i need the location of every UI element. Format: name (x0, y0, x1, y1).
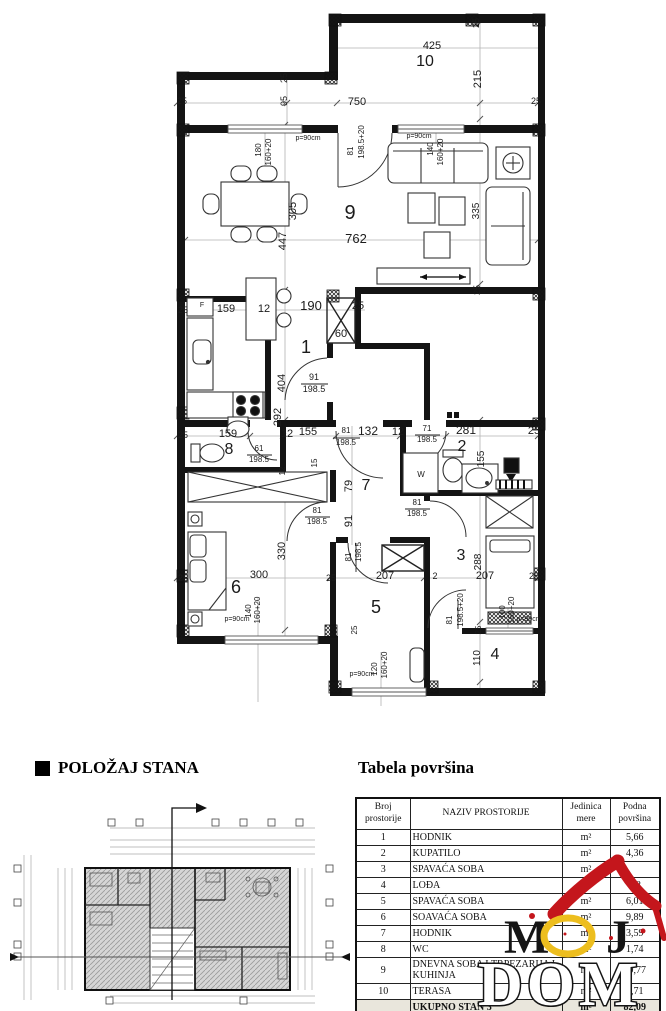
room-number-label: 10 (416, 53, 434, 70)
dim-label: 100 (498, 605, 507, 619)
dim-label: 198.5+20 (456, 593, 465, 627)
dim-label: 300 (250, 569, 268, 581)
room-number-label: 6 (231, 577, 241, 597)
dim-label: 160+20 (264, 138, 273, 165)
room-number-label: 2 (458, 438, 467, 455)
dim-label: 12 (281, 428, 293, 440)
dim-label: 281 (456, 423, 476, 437)
dim-label: 25 (178, 305, 188, 315)
table-total-row: UKUPNO STAN 3m²82,09 (356, 999, 660, 1011)
dim-label: 198.5 (336, 438, 357, 447)
table-col-header: Podna površina (610, 798, 660, 829)
window (225, 636, 318, 644)
cell-unit: m² (562, 983, 610, 999)
dim-label: 25 (471, 18, 481, 28)
radiator (496, 480, 532, 489)
dim-label: 160+20 (507, 596, 516, 623)
dim-label: 81 (445, 615, 454, 624)
pillow (190, 535, 206, 557)
dim-label: 25 (326, 573, 336, 583)
table-row: 1HODNIKm²5,66 (356, 829, 660, 845)
toilet (443, 458, 463, 482)
cell-area: 29,77 (610, 957, 660, 983)
furniture (187, 143, 534, 682)
table-row: 10TERASAm²2,71 (356, 983, 660, 999)
window (352, 688, 426, 696)
cell-area: 2,2 (610, 877, 660, 893)
coffee-table (408, 193, 435, 223)
dim-label: 91 (309, 372, 319, 382)
dim-label: 79 (343, 480, 355, 492)
cell-no: 6 (356, 909, 410, 925)
chair (203, 194, 219, 214)
cell-no: 7 (356, 925, 410, 941)
dim-label: 60 (335, 328, 347, 340)
dim-label: 207 (376, 570, 394, 582)
cell-unit: m² (562, 999, 610, 1011)
dim-label: 404 (276, 374, 288, 392)
table-row: 2KUPATILOm²4,36 (356, 845, 660, 861)
chair (231, 166, 251, 181)
dim-label: 81 (413, 498, 422, 507)
table-row: 3SPAVAĆA SOBAm² (356, 861, 660, 877)
room-number-label: 9 (344, 202, 355, 224)
cell-area: 2,71 (610, 983, 660, 999)
toilet-tank (191, 444, 200, 462)
room-number-label: 3 (457, 547, 466, 564)
dim-label: 25 (472, 285, 482, 295)
dim-label: p=90cm (295, 135, 320, 142)
cell-area: 4,36 (610, 845, 660, 861)
dim-label: 330 (276, 542, 288, 560)
dim-label: 91 (343, 515, 355, 527)
page: 425102152525257509525p=90cm180160+208119… (0, 0, 666, 1011)
areas-table: Broj prostorijeNAZIV PROSTORIJEJedinica … (355, 797, 661, 1011)
window (486, 628, 533, 634)
floor-plan-drawing: 425102152525257509525p=90cm180160+208119… (0, 0, 666, 750)
cell-name: WC (410, 941, 562, 957)
boiler (504, 458, 519, 473)
dim-label: 2 (432, 571, 437, 581)
toilet (200, 444, 224, 462)
dim-label: 160+20 (253, 596, 262, 623)
stool (277, 313, 291, 327)
cell-no: 10 (356, 983, 410, 999)
cell-area (610, 861, 660, 877)
dim-label: 425 (423, 40, 441, 52)
dining-table (221, 182, 289, 226)
chair (257, 227, 277, 242)
dim-label: 25 (352, 300, 364, 312)
dim-label: 140 (426, 142, 435, 156)
table-col-header: NAZIV PROSTORIJE (410, 798, 562, 829)
dim-label: 12 (258, 303, 270, 315)
cell-area: 3,59 (610, 925, 660, 941)
table-row: 9DNEVNA SOBA I TRPEZARIJA I KUHINJAm²29,… (356, 957, 660, 983)
cell-no: 5 (356, 893, 410, 909)
dim-label: 305 (287, 202, 299, 220)
cell-no: 3 (356, 861, 410, 877)
dim-label: 15 (310, 458, 319, 467)
cell-name: HODNIK (410, 925, 562, 941)
chair (231, 227, 251, 242)
dim-label: 198.5 (307, 517, 328, 526)
window (228, 125, 302, 133)
dim-label: 81 (342, 426, 351, 435)
bath-sink (466, 468, 492, 488)
cell-area: 82,09 (610, 999, 660, 1011)
dim-label: 25 (178, 430, 188, 440)
dim-label: 61 (255, 444, 264, 453)
dim-label: 159 (217, 303, 235, 315)
dim-label: 288 (473, 553, 484, 570)
dim-label: 132 (358, 424, 378, 438)
dim-label: 25 (279, 73, 289, 83)
section-arrow (196, 803, 207, 813)
cell-unit: m² (562, 893, 610, 909)
dim-label: 155 (299, 426, 317, 438)
room-number-label: 8 (225, 441, 234, 458)
table-head-row: Broj prostorijeNAZIV PROSTORIJEJedinica … (356, 798, 660, 829)
cell-name: SOAVAĆA SOBA (410, 909, 562, 925)
dim-label: 215 (472, 70, 484, 88)
cell-name: LOĐA (410, 877, 562, 893)
dim-label: 180 (254, 143, 263, 157)
dim-label: 447 (277, 232, 289, 250)
dim-label: 198.5 (249, 455, 270, 464)
dim-label: 198.5 (303, 384, 326, 394)
dim-label: 25 (350, 625, 359, 634)
cell-unit: m² (562, 909, 610, 925)
stool (277, 289, 291, 303)
dim-label: 198.5 (407, 509, 428, 518)
cell-no: 1 (356, 829, 410, 845)
polozaj-title: POLOŽAJ STANA (58, 758, 199, 778)
table-header: Tabela površina (358, 758, 474, 778)
cell-unit: m² (562, 861, 610, 877)
dim-label: W (417, 470, 425, 479)
dim-label: 207 (476, 570, 494, 582)
dim-label: 12 (278, 466, 287, 475)
building-position-plan (10, 795, 350, 1010)
room-number-label: 7 (362, 477, 371, 494)
table-row: 4LOĐAm²2,2 (356, 877, 660, 893)
dim-label: 25 (474, 625, 483, 634)
cell-no: 8 (356, 941, 410, 957)
cell-no (356, 999, 410, 1011)
cell-name: HODNIK (410, 829, 562, 845)
dim-label: F (200, 302, 204, 309)
dim-label: 95 (279, 96, 289, 106)
cell-unit: m² (562, 829, 610, 845)
dim-label: 25 (531, 96, 541, 106)
polozaj-header: POLOŽAJ STANA (35, 758, 199, 778)
cell-name: KUPATILO (410, 845, 562, 861)
dim-label: 762 (345, 231, 367, 246)
table-row: 5SPAVAĆA SOBAm²6,01 (356, 893, 660, 909)
dim-label: 110 (472, 650, 483, 666)
room-number-label: 1 (301, 337, 311, 357)
window (398, 125, 464, 133)
dim-label: 81 (346, 146, 355, 155)
cell-area: 9,89 (610, 909, 660, 925)
cell-name: DNEVNA SOBA I TRPEZARIJA I KUHINJA (410, 957, 562, 983)
dim-label: 25 (178, 573, 188, 583)
table-col-header: Jedinica mere (562, 798, 610, 829)
table-title: Tabela površina (358, 758, 474, 778)
dim-label: 160+20 (436, 138, 445, 165)
cell-unit: m² (562, 957, 610, 983)
cell-area: 6,01 (610, 893, 660, 909)
dim-label: 155 (476, 450, 487, 467)
coffee-table (439, 197, 465, 225)
dim-label: 81 (313, 506, 322, 515)
dim-label: 25 (528, 425, 540, 437)
table-col-header: Broj prostorije (356, 798, 410, 829)
dim-label: 25 (177, 96, 187, 106)
cell-name: SPAVAĆA SOBA (410, 893, 562, 909)
cell-name: TERASA (410, 983, 562, 999)
cell-no: 2 (356, 845, 410, 861)
dim-label: 159 (219, 428, 237, 440)
dim-label: 81 (344, 552, 353, 561)
dim-label: 335 (471, 202, 482, 219)
dim-label: 198.5+20 (357, 125, 366, 159)
cell-area: 5,66 (610, 829, 660, 845)
cell-name: SPAVAĆA SOBA (410, 861, 562, 877)
cell-unit: m² (562, 925, 610, 941)
cell-unit: m² (562, 845, 610, 861)
cell-unit: m² (562, 941, 610, 957)
dim-label: 120 (370, 662, 379, 676)
black-square-bullet (35, 761, 50, 776)
cell-no: 9 (356, 957, 410, 983)
dim-label: 198.5 (417, 435, 438, 444)
dim-label: 190 (300, 298, 322, 313)
chair (257, 166, 277, 181)
dim-label: p=90cm (516, 616, 541, 623)
dim-label: 750 (348, 96, 366, 108)
dim-label: 198.5 (354, 541, 363, 562)
dim-label: 140 (244, 604, 253, 618)
radiator (410, 648, 424, 682)
dim-label: 292 (272, 408, 284, 426)
table-row: 7HODNIKm²3,59 (356, 925, 660, 941)
pillow (490, 540, 530, 552)
dim-label: 160+20 (380, 651, 389, 678)
table-row: 6SOAVAĆA SOBAm²9,89 (356, 909, 660, 925)
cell-unit: m² (562, 877, 610, 893)
room-number-label: 4 (491, 646, 500, 663)
areas-table-wrap: Broj prostorijeNAZIV PROSTORIJEJedinica … (355, 797, 661, 1011)
coffee-table (424, 232, 450, 258)
dim-label: 71 (423, 424, 432, 433)
dim-label: p=90cm (406, 133, 431, 140)
table-row: 8WCm²1,74 (356, 941, 660, 957)
room-number-label: 5 (371, 597, 381, 617)
dim-label: 12 (392, 426, 404, 438)
dim-label: 25 (529, 571, 539, 581)
cell-no: 4 (356, 877, 410, 893)
cell-area: 1,74 (610, 941, 660, 957)
cell-name: UKUPNO STAN 3 (410, 999, 562, 1011)
pillow (190, 560, 206, 582)
